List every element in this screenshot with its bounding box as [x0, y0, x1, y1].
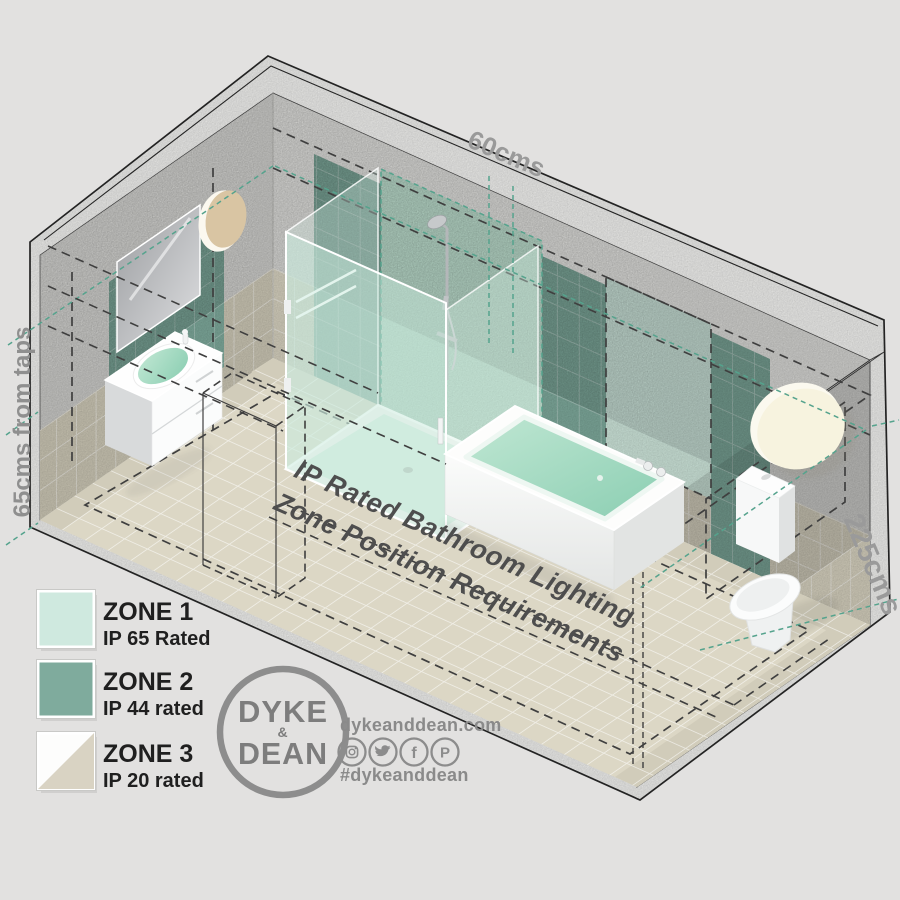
legend: ZONE 1 IP 65 Rated ZONE 2 IP 44 rated ZO… [37, 590, 211, 794]
bathroom-zones-diagram: IP Rated Bathroom Lighting Zone Position… [0, 0, 900, 900]
pinterest-letter: P [440, 745, 450, 762]
infographic-canvas: IP Rated Bathroom Lighting Zone Position… [0, 0, 900, 900]
logo-dean: DEAN [238, 736, 328, 771]
zone2-swatch [38, 661, 94, 717]
facebook-letter: f [411, 745, 417, 762]
zone1-label: ZONE 1 [103, 598, 193, 626]
dimension-65cms-from-taps: 65cms from taps [9, 327, 36, 518]
zone2-label: ZONE 2 [103, 668, 193, 696]
zone1-swatch [38, 591, 94, 647]
legend-item-zone1: ZONE 1 IP 65 Rated [37, 590, 211, 652]
website-link[interactable]: dykeanddean.com [340, 715, 502, 735]
zone3-rating: IP 20 rated [103, 770, 204, 792]
legend-item-zone2: ZONE 2 IP 44 rated [37, 660, 204, 722]
hashtag-label: #dykeanddean [340, 765, 469, 785]
legend-item-zone3: ZONE 3 IP 20 rated [37, 732, 204, 794]
zone2-rating: IP 44 rated [103, 698, 204, 720]
zone1-rating: IP 65 Rated [103, 628, 210, 650]
zone3-label: ZONE 3 [103, 740, 193, 768]
